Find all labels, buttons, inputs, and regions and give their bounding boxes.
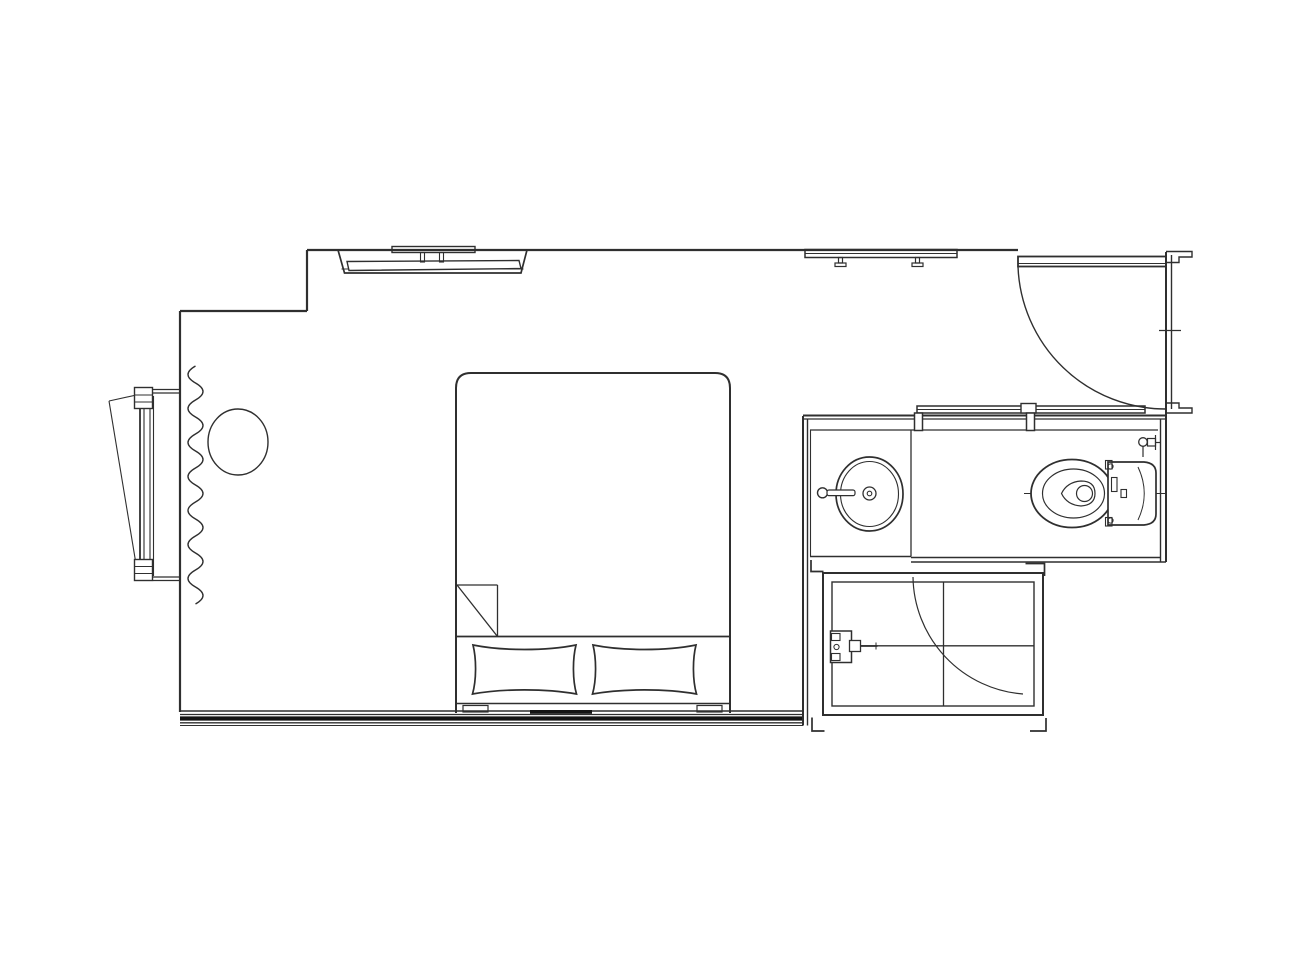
entry-door (1018, 257, 1166, 410)
curtain (188, 366, 203, 604)
entry-door-frame (1159, 252, 1192, 414)
toilet (1024, 460, 1167, 528)
pillow-left (473, 645, 577, 694)
bottom-wall (180, 711, 803, 726)
shower-valve (831, 631, 878, 663)
floor-plan-canvas (0, 0, 1300, 975)
bathroom-right-wall (1161, 412, 1167, 562)
side-table (208, 409, 268, 475)
bedroom-walls (180, 250, 1018, 712)
pillow-right (593, 645, 697, 694)
bedroom-right-wall (803, 416, 808, 726)
closet-rod (805, 250, 957, 267)
sink (818, 457, 904, 531)
sliding-door (915, 404, 1146, 431)
floor-plan-page (0, 0, 1300, 975)
window (109, 388, 180, 581)
bathroom-bottom-wall (810, 557, 1166, 563)
bathroom-top-wall (803, 416, 1166, 420)
toilet-supply-valve (1139, 435, 1161, 457)
